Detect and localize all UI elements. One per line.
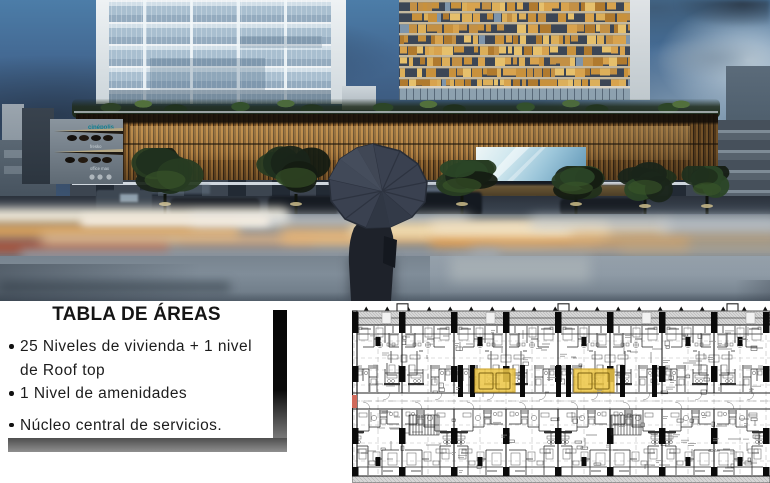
svg-text:fresko: fresko	[90, 144, 102, 149]
svg-text:office max: office max	[90, 166, 110, 171]
